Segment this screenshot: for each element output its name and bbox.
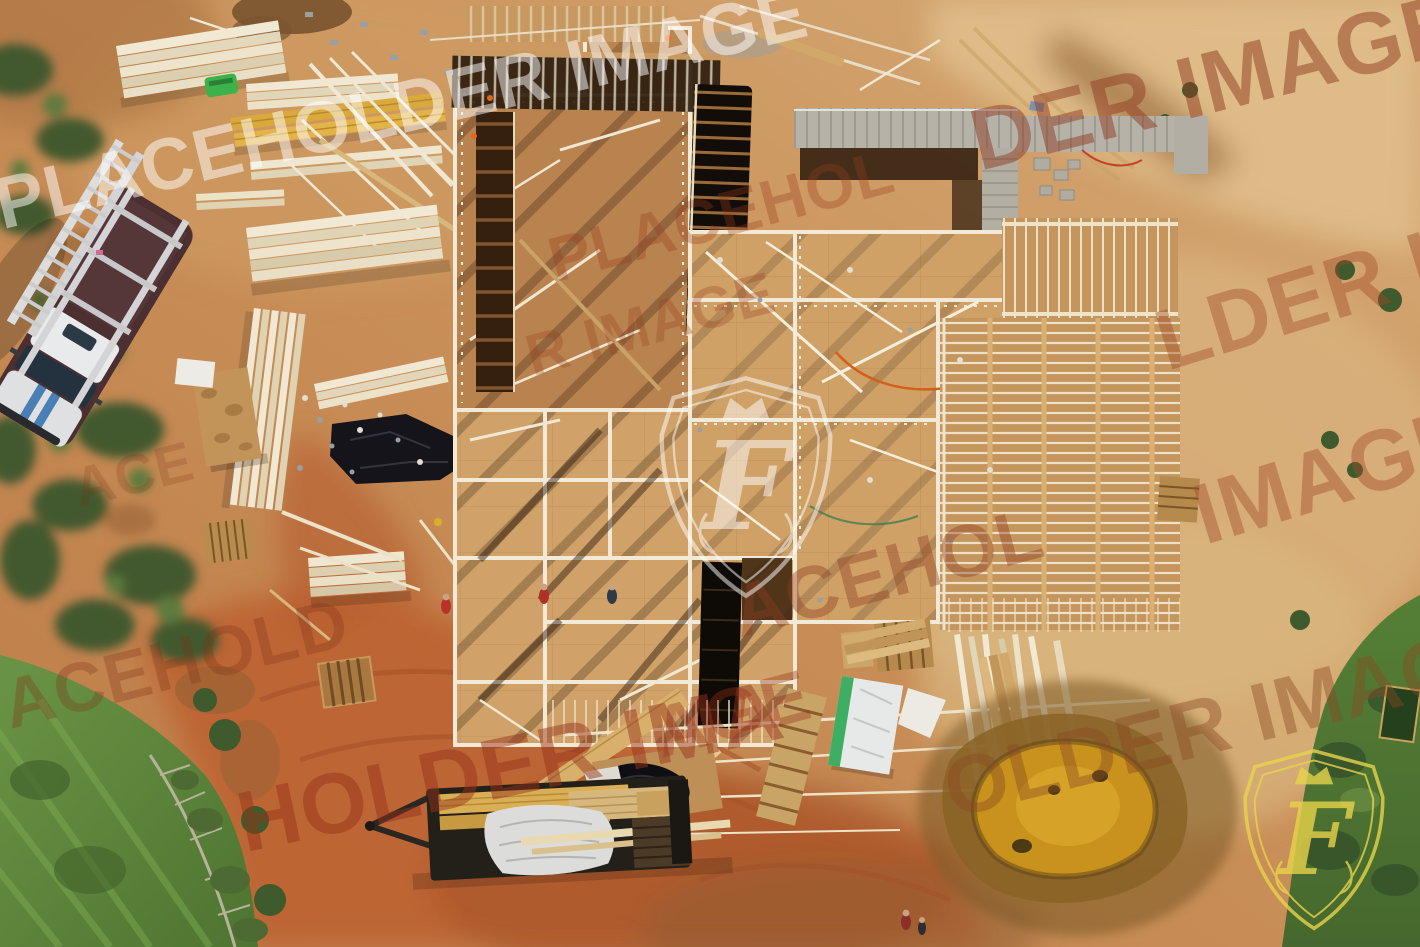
crest-letter: F xyxy=(700,415,797,558)
crest-letter: F xyxy=(1276,782,1356,898)
watermark-crest-corner: F xyxy=(1228,746,1400,938)
pallet xyxy=(202,518,255,564)
stock-photo-preview: PLACEHOLDER IMAGE DER IMAGE LDER IMA IMA… xyxy=(0,0,1420,947)
left-trench xyxy=(476,112,514,392)
watermark-crest-center: F xyxy=(648,372,844,608)
